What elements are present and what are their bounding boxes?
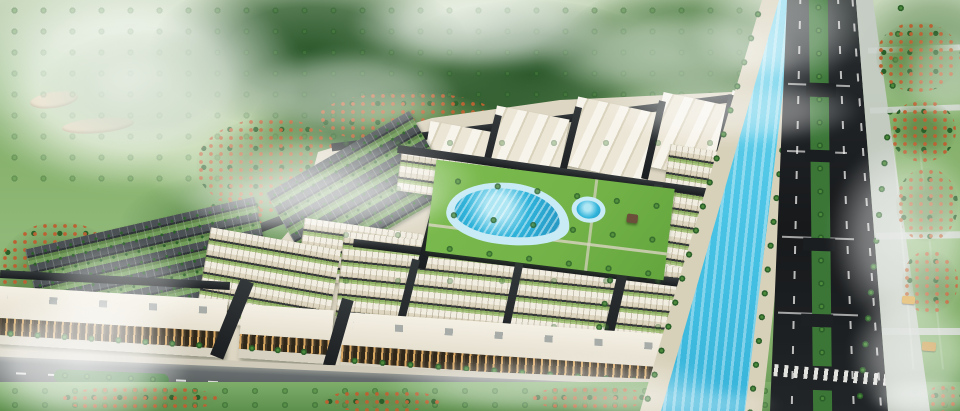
mist-cloud (240, 50, 460, 140)
shophouse-strip-2 (238, 304, 334, 364)
mist-cloud (180, 165, 460, 245)
median-gap (801, 313, 833, 327)
mist-cloud (600, 75, 860, 145)
median-gap (805, 149, 835, 162)
aerial-masterplan-rendering (0, 0, 960, 411)
mist-cloud (40, 240, 200, 340)
